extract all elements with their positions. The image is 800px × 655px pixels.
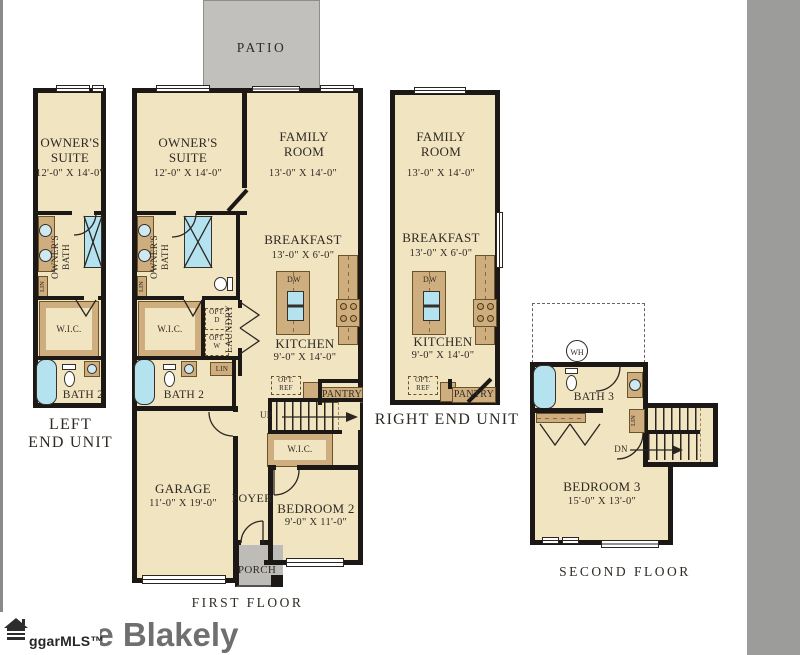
right-family-room-dims: 13'-0" X 14'-0": [391, 168, 491, 180]
closet-rod: [536, 413, 586, 423]
window: [156, 85, 210, 92]
window: [56, 85, 90, 92]
wall: [94, 211, 106, 215]
wall: [268, 430, 342, 434]
wic-label: W.I.C.: [135, 324, 205, 334]
right-end-unit-title: RIGHT END UNIT: [372, 411, 522, 429]
porch-post: [271, 575, 283, 587]
right-kitchen-label: KITCHEN: [393, 335, 493, 350]
wall: [530, 408, 603, 413]
stove-burner: [487, 315, 494, 322]
wall: [260, 540, 272, 545]
left-end-unit-line1: LEFT: [18, 416, 123, 434]
first-floor-title: FIRST FLOOR: [160, 595, 335, 611]
mls-logo-text: ggarMLS™: [29, 633, 105, 649]
patio-label: PATIO: [203, 40, 320, 56]
breakfast-dims: 13'-0" X 6'-0": [253, 250, 353, 262]
window: [601, 540, 659, 548]
stove: [336, 299, 360, 327]
toilet-bowl: [164, 371, 175, 387]
stove-burner: [340, 315, 347, 322]
right-pantry-label: PANTRY: [452, 389, 496, 401]
porch-label: PORCH: [233, 564, 281, 577]
garage-door: [142, 575, 226, 584]
linen-label: LIN: [39, 277, 47, 297]
open-below-outline: [532, 303, 645, 363]
wall: [238, 300, 242, 308]
wall: [33, 356, 106, 360]
wall: [448, 379, 452, 389]
wall: [648, 430, 700, 434]
linen-label: LIN: [630, 410, 644, 432]
stove: [473, 299, 497, 327]
stove-burner: [350, 315, 357, 322]
sink-basin: [184, 364, 194, 374]
left-owners-bath-label: OWNER'S BATH: [51, 229, 77, 285]
toilet-bowl: [566, 375, 577, 391]
door-opening: [228, 412, 238, 436]
toilet-tank: [565, 368, 578, 374]
staircase-up: [276, 402, 338, 430]
wall: [238, 348, 242, 376]
bedroom3-label: BEDROOM 3: [552, 480, 652, 495]
laundry-label: LAUNDRY: [225, 299, 237, 359]
linen-closet: LIN: [38, 276, 48, 298]
toilet-bowl: [64, 371, 75, 387]
opt-ref-line2: REF: [272, 385, 300, 393]
stair-landing: [700, 408, 713, 462]
owners-suite-label: OWNER'S SUITE: [149, 136, 227, 166]
wall: [232, 356, 236, 406]
dishwasher-label: DW: [283, 275, 305, 284]
toilet-tank: [163, 364, 176, 370]
shower: [84, 216, 102, 268]
bedroom2-label: BEDROOM 2: [266, 502, 366, 517]
bathtub: [533, 365, 556, 409]
garage-label: GARAGE: [133, 482, 233, 497]
garage-dims: 11'-0" X 19'-0": [133, 498, 233, 510]
patio-door: [252, 86, 300, 92]
kitchen-sink: [287, 291, 304, 321]
linen-label: LIN: [138, 277, 146, 297]
left-owners-suite-dims: 12'-0" X 14'-0": [20, 168, 120, 180]
left-end-unit-line2: END UNIT: [18, 434, 123, 452]
toilet-tank: [227, 277, 233, 291]
bath3-label: BATH 3: [559, 391, 629, 404]
owners-bath-label: OWNER'S BATH: [150, 229, 176, 285]
linen-closet: LIN: [137, 276, 147, 298]
left-owners-suite-label: OWNER'S SUITE: [31, 136, 109, 166]
window: [496, 212, 503, 268]
wall: [98, 296, 106, 300]
bath2-label: BATH 2: [149, 389, 219, 402]
opt-refrigerator: OPT. REF: [408, 376, 438, 395]
right-edge-bar: [747, 0, 800, 655]
right-breakfast-dims: 13'-0" X 6'-0": [391, 248, 491, 260]
hall-wic-label: W.I.C.: [268, 444, 332, 454]
stove-burner: [477, 315, 484, 322]
opt-refrigerator: OPT. REF: [271, 376, 301, 395]
toilet-tank: [62, 364, 76, 370]
wall: [297, 465, 363, 470]
right-family-room-label: FAMILY ROOM: [411, 130, 471, 160]
window: [562, 537, 579, 544]
window: [320, 85, 354, 92]
left-end-unit-title: LEFT END UNIT: [18, 416, 123, 453]
wall: [132, 296, 184, 300]
wall: [33, 211, 72, 215]
bedroom3-dims: 15'-0" X 13'-0": [552, 496, 652, 508]
linen-label: LIN: [216, 365, 229, 373]
opt-ref-line2: REF: [409, 385, 437, 393]
sink-basin: [87, 364, 97, 374]
kitchen-label: KITCHEN: [255, 337, 355, 352]
window: [414, 87, 466, 94]
stove-burner: [477, 303, 484, 310]
bedroom2-dims: 9'-0" X 11'-0": [266, 517, 366, 529]
left-edge-bar: [0, 0, 3, 632]
owners-suite-dims: 12'-0" X 14'-0": [138, 168, 238, 180]
mls-house-icon: [3, 615, 30, 643]
window: [92, 85, 104, 92]
staircase-upper-flight: [655, 408, 700, 430]
dishwasher-label: DW: [419, 275, 441, 284]
wall: [132, 406, 238, 411]
wall: [318, 379, 363, 383]
right-breakfast-label: BREAKFAST: [385, 231, 497, 246]
wall: [132, 211, 176, 215]
floorplan-sheet: PATIO OWNER'S SUITE 12'-0" X 14'-0" OWNE…: [0, 0, 800, 655]
right-kitchen-dims: 9'-0" X 14'-0": [393, 350, 493, 362]
up-label: UP: [256, 410, 276, 420]
wall: [242, 88, 247, 188]
shower: [184, 216, 212, 268]
linen-closet: LIN: [210, 362, 234, 376]
breakfast-label: BREAKFAST: [247, 233, 359, 248]
stove-burner: [350, 303, 357, 310]
toilet-bowl: [214, 277, 227, 291]
wall: [33, 296, 84, 300]
stove-burner: [340, 303, 347, 310]
water-heater: WH: [566, 340, 588, 362]
window: [542, 537, 559, 544]
dn-label: DN: [610, 444, 632, 454]
window: [286, 558, 344, 567]
linen-closet: LIN: [629, 409, 645, 433]
pantry-label: PANTRY: [320, 389, 364, 401]
left-wic-label: W.I.C.: [34, 324, 104, 334]
second-floor-title: SECOND FLOOR: [535, 564, 715, 580]
stove-burner: [487, 303, 494, 310]
wall: [236, 211, 240, 300]
kitchen-dims: 9'-0" X 14'-0": [255, 352, 355, 364]
water-heater-label: WH: [570, 348, 583, 357]
stair-landing: [338, 402, 360, 430]
family-room-dims: 13'-0" X 14'-0": [253, 168, 353, 180]
wall: [233, 540, 241, 545]
family-room-label: FAMILY ROOM: [274, 130, 334, 160]
sink-basin: [629, 379, 641, 391]
left-bath2-label: BATH 2: [48, 389, 118, 402]
staircase-lower-flight: [648, 434, 700, 460]
kitchen-sink: [423, 291, 440, 321]
